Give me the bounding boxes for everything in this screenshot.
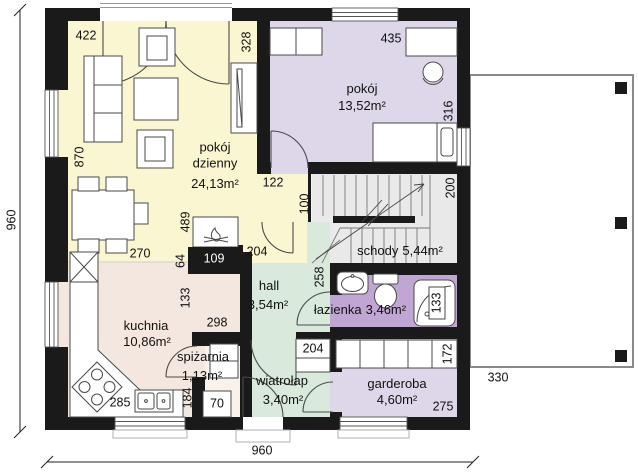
room-label-pantry-area: 1,13m²	[182, 368, 222, 384]
dim-960-left: 960	[5, 210, 20, 231]
room-label-hall-area: 3,54m²	[248, 297, 288, 313]
dim-275: 275	[433, 400, 454, 415]
room-label-hall-name: hall	[259, 278, 279, 294]
terrace	[470, 75, 633, 367]
tv-cabinet	[231, 63, 257, 133]
dim-184: 184	[181, 388, 196, 409]
dim-328: 328	[240, 32, 255, 53]
dim-133-shower: 133	[430, 293, 445, 314]
room-label-vestibule-name: wiatrołap	[256, 373, 308, 389]
chair	[78, 177, 99, 191]
room-label-wardrobe-area: 4,60m²	[377, 392, 417, 408]
desk	[406, 28, 457, 56]
room-label-living-area: 24,13m²	[191, 176, 239, 192]
desk-chair	[423, 62, 443, 82]
chair	[106, 177, 127, 191]
chair	[134, 203, 148, 224]
wardrobe-unit	[336, 340, 457, 368]
dim-133-kitchen: 133	[179, 288, 194, 309]
dim-109-fireplace: 109	[204, 252, 225, 267]
room-label-living-name: pokój dzienny	[176, 139, 254, 170]
dim-100: 100	[298, 194, 313, 215]
dim-200: 200	[444, 178, 459, 199]
chair	[78, 239, 99, 253]
room-label-pantry-name: spiżarnia	[177, 349, 229, 365]
dim-70: 70	[210, 397, 224, 412]
dim-298: 298	[207, 316, 228, 331]
floor-plan-svg	[0, 0, 638, 474]
dim-316: 316	[442, 101, 457, 122]
dim-172: 172	[441, 344, 456, 365]
room-label-bathroom: łazienka3,46m²	[314, 302, 406, 318]
room-label-wardrobe-name: garderoba	[367, 376, 426, 392]
dim-489: 489	[179, 212, 194, 233]
dining-table	[72, 190, 134, 240]
room-label-kitchen-area: 10,86m²	[123, 334, 171, 350]
dim-435: 435	[381, 32, 402, 47]
dim-870: 870	[73, 147, 88, 168]
sofa	[84, 56, 122, 142]
fireplace	[193, 217, 238, 247]
toilet-tank	[373, 274, 398, 284]
room-label-stairs: schody5,44m²	[357, 243, 443, 259]
floor-plan: pokój dzienny 24,13m² pokój 13,52m² scho…	[0, 0, 638, 474]
dim-285: 285	[110, 396, 131, 411]
dim-122: 122	[263, 176, 284, 191]
dim-422: 422	[76, 29, 97, 44]
coffee-table	[134, 78, 178, 120]
pillow	[441, 128, 453, 156]
room-label-kitchen-name: kuchnia	[124, 318, 169, 334]
dim-258: 258	[313, 267, 328, 288]
room-label-vestibule-area: 3,40m²	[263, 392, 303, 408]
dim-204-vestibule: 204	[303, 342, 324, 357]
chair	[106, 239, 127, 253]
dim-64: 64	[174, 254, 189, 268]
room-label-bedroom-name: pokój	[346, 81, 377, 97]
dim-204-living: 204	[247, 245, 268, 260]
dim-960-bottom: 960	[252, 444, 273, 459]
dim-330-terrace: 330	[488, 371, 509, 386]
dim-270: 270	[130, 247, 151, 262]
room-label-bedroom-area: 13,52m²	[338, 98, 386, 114]
